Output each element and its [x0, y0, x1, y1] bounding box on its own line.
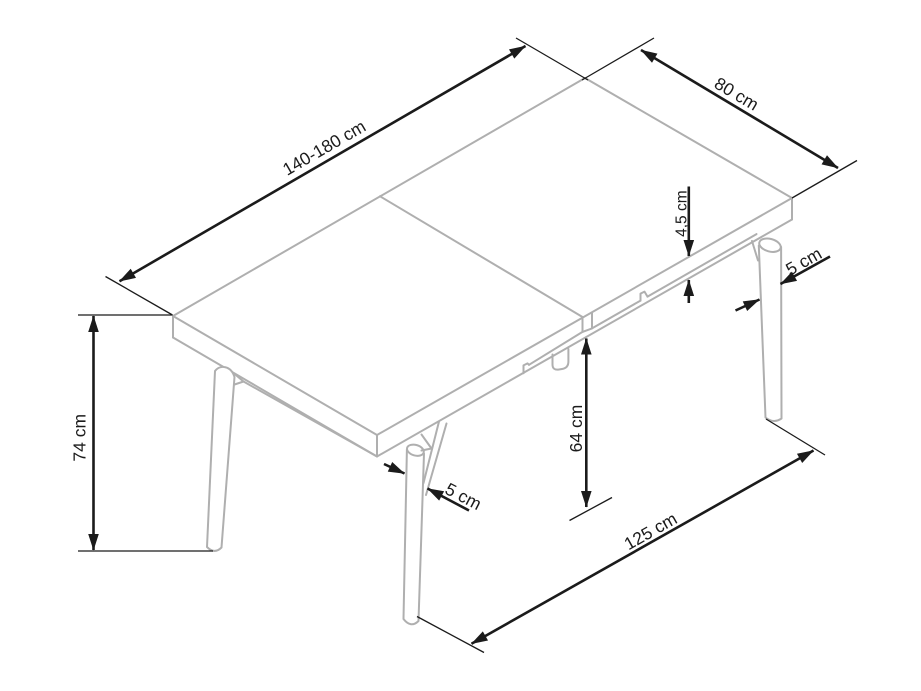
svg-text:4,5 cm: 4,5 cm: [673, 190, 690, 237]
svg-text:64 cm: 64 cm: [566, 405, 586, 453]
svg-text:5 cm: 5 cm: [782, 243, 825, 279]
svg-text:74 cm: 74 cm: [70, 414, 90, 462]
svg-text:140-180 cm: 140-180 cm: [279, 116, 369, 180]
